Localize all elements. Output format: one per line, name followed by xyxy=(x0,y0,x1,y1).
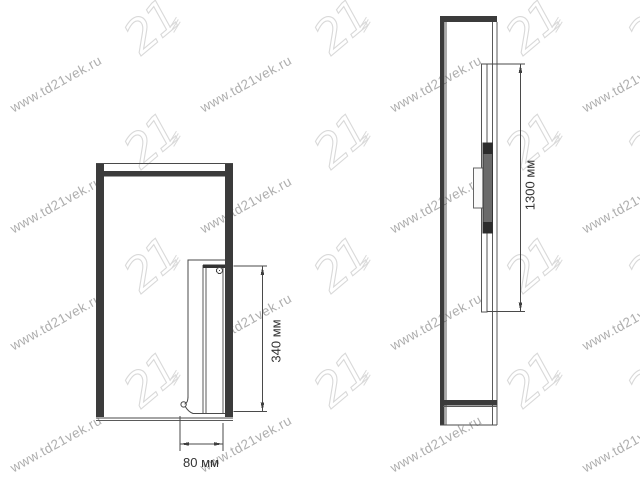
carriage-bottom-cap xyxy=(483,222,493,233)
dim80-label: 80 мм xyxy=(183,455,219,470)
side-top-edge xyxy=(440,16,497,22)
dim1300-arrow-down-icon xyxy=(519,303,523,312)
mount-bracket xyxy=(474,168,484,208)
side-left-edge xyxy=(440,16,445,425)
rail-top-cap xyxy=(203,265,225,269)
hook-loop xyxy=(181,402,186,407)
front-left-post xyxy=(96,163,104,417)
dim1300-label: 1300 мм xyxy=(522,160,537,210)
dim340-arrow-up-icon xyxy=(261,266,265,275)
dim340-arrow-down-icon xyxy=(261,403,265,412)
slide-rail-front xyxy=(181,260,225,414)
dim1300-arrow-up-icon xyxy=(519,64,523,73)
carriage-top-cap xyxy=(483,143,493,154)
front-right-post xyxy=(225,163,233,417)
dim80-arrow-right-icon xyxy=(214,442,223,446)
carriage-body xyxy=(483,143,493,233)
front-top-rail-bar xyxy=(104,171,225,177)
screw-center-dot xyxy=(219,270,221,272)
side-bottom-bar xyxy=(443,400,497,406)
technical-drawing-page: www.td21vek.ruwww.td21vek.ruwww.td21vek.… xyxy=(0,0,640,480)
dimension-front-depth: 80 мм xyxy=(180,416,223,470)
drawing-canvas: 340 мм 80 мм xyxy=(0,0,640,480)
dim340-label: 340 мм xyxy=(268,319,283,362)
front-view: 340 мм 80 мм xyxy=(96,163,283,470)
dim80-arrow-left-icon xyxy=(180,442,189,446)
side-view: 1300 мм xyxy=(440,16,537,425)
slide-rail-side xyxy=(474,64,493,312)
dimension-front-height: 340 мм xyxy=(234,266,284,412)
